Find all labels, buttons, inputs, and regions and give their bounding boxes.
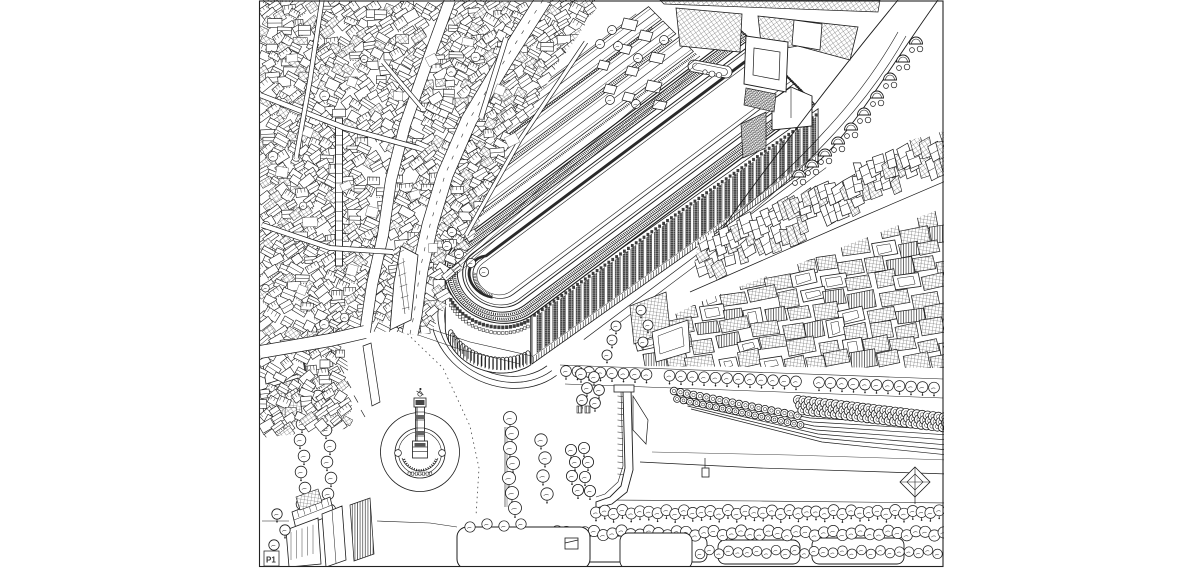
svg-text:P1: P1 [266, 556, 276, 565]
